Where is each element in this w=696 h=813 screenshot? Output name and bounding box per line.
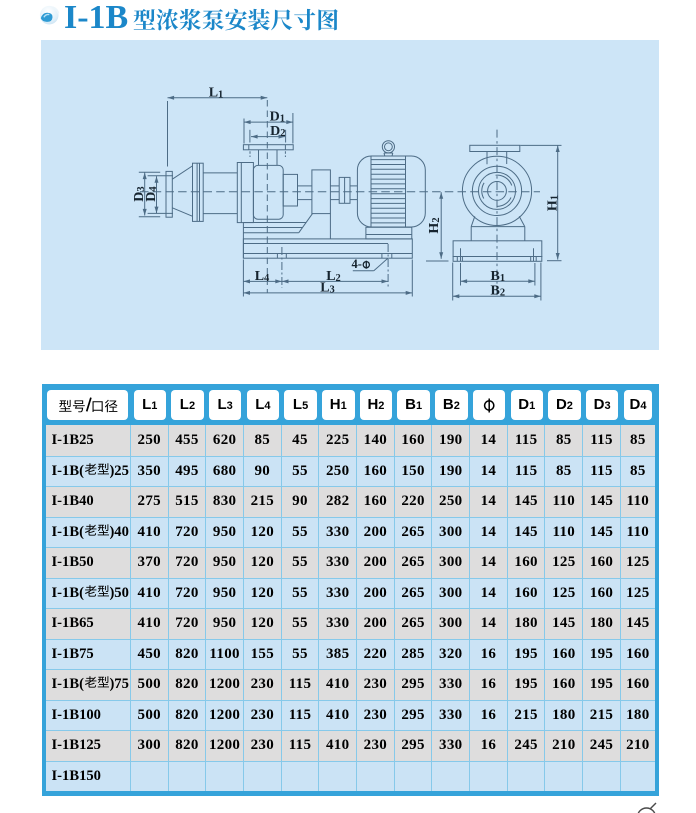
svg-text:4-: 4- xyxy=(352,257,362,271)
svg-text:I-1B: I-1B xyxy=(64,2,128,36)
